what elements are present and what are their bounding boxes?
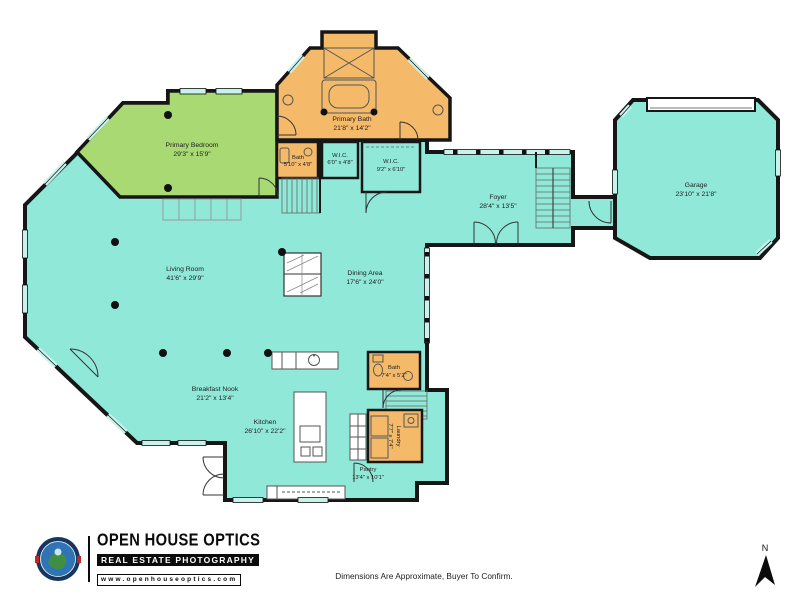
label-pantry: Pantry (360, 467, 377, 473)
nook-french-doors (203, 457, 224, 495)
label-bath-lower: Bath (388, 365, 400, 371)
room-laundry (368, 410, 422, 462)
label-primary-bath: Primary Bath (332, 116, 372, 123)
logo-subtitle: REAL ESTATE PHOTOGRAPHY (97, 554, 259, 567)
floor-plan: Primary Bedroom 29'3" x 15'9" Primary Ba… (0, 0, 800, 600)
room-garage (613, 98, 781, 258)
label-living-room: Living Room (166, 266, 204, 273)
svg-text:13'4" x 10'1": 13'4" x 10'1" (352, 475, 384, 481)
kitchen-counter-bottom (267, 486, 345, 499)
svg-text:26'10" x 22'2": 26'10" x 22'2" (244, 428, 286, 435)
dining-window-wall (425, 248, 430, 343)
label-bath-upper: Bath (292, 155, 304, 161)
label-kitchen: Kitchen (254, 419, 277, 426)
kitchen-island (294, 392, 326, 462)
svg-text:5'10" x 4'8": 5'10" x 4'8" (284, 162, 313, 168)
svg-text:41'6" x 29'9": 41'6" x 29'9" (166, 275, 204, 282)
label-dining-area: Dining Area (347, 270, 382, 277)
svg-text:17'6" x 24'0": 17'6" x 24'0" (346, 279, 384, 286)
room-primary-bath (277, 32, 450, 140)
svg-text:28'4" x 13'5": 28'4" x 13'5" (479, 203, 517, 210)
logo-url: www.openhouseoptics.com (97, 574, 241, 586)
label-laundry: Laundry (395, 426, 401, 447)
label-primary-bedroom: Primary Bedroom (166, 142, 219, 149)
company-logo-emblem (34, 534, 82, 584)
garage-door (647, 98, 755, 111)
svg-text:21'8" x 14'2": 21'8" x 14'2" (333, 125, 371, 132)
svg-text:7'4" x 5'2": 7'4" x 5'2" (381, 373, 406, 379)
label-wic-large: W.I.C. (383, 159, 399, 165)
svg-text:29'3" x 15'9": 29'3" x 15'9" (173, 151, 211, 158)
svg-text:23'10" x 21'8": 23'10" x 21'8" (675, 191, 717, 198)
fireplace (284, 253, 321, 296)
label-wic-small: W.I.C. (332, 153, 348, 159)
label-breakfast-nook: Breakfast Nook (192, 386, 239, 393)
svg-text:9'2" x 6'10": 9'2" x 6'10" (377, 167, 406, 173)
label-garage: Garage (685, 182, 708, 189)
svg-text:21'2" x 13'4": 21'2" x 13'4" (196, 395, 234, 402)
logo-divider (88, 536, 90, 582)
label-foyer: Foyer (489, 194, 507, 201)
logo-title: OPEN HOUSE OPTICS (97, 531, 260, 550)
kitchen-cabinets (350, 414, 366, 460)
north-arrow-icon: N (748, 543, 782, 596)
kitchen-counter-top (272, 352, 338, 369)
svg-text:7'7" x 7'4": 7'7" x 7'4" (387, 423, 393, 448)
svg-text:6'0" x 4'8": 6'0" x 4'8" (327, 160, 352, 166)
floor-plan-page: Primary Bedroom 29'3" x 15'9" Primary Ba… (0, 0, 800, 600)
company-logo: OPEN HOUSE OPTICS REAL ESTATE PHOTOGRAPH… (34, 532, 275, 586)
disclaimer-text: Dimensions Are Approximate, Buyer To Con… (294, 571, 554, 581)
north-label: N (748, 543, 782, 553)
